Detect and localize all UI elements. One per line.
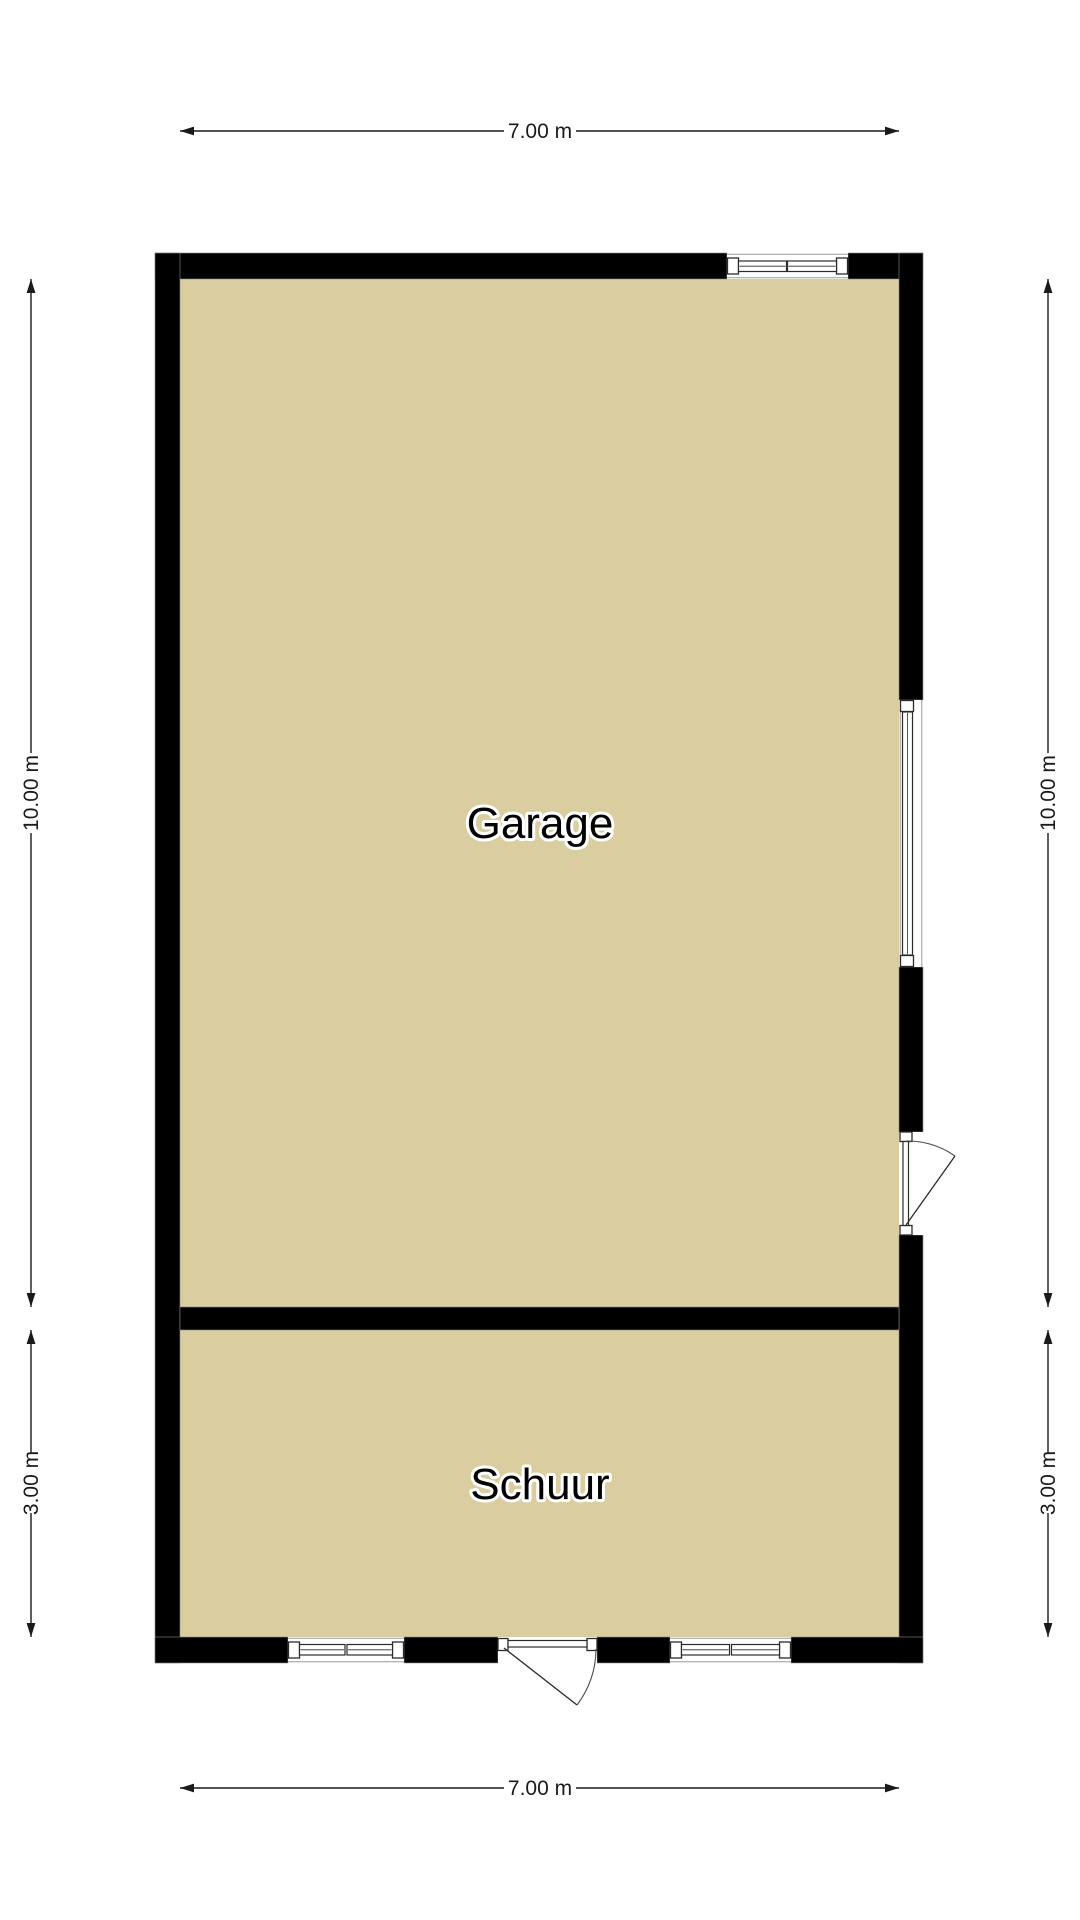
- dim-top-arrow-right: [885, 127, 899, 136]
- dim-left-schuur-label: 3.00 m: [20, 1451, 43, 1515]
- wall-divider: [180, 1307, 899, 1330]
- window-right: [899, 700, 923, 967]
- dim-right-garage: 10.00 m: [1037, 279, 1060, 1307]
- dim-left-garage-arrow-top: [27, 279, 36, 293]
- dim-left-garage: 10.00 m: [20, 279, 43, 1307]
- dim-left-garage-label: 10.00 m: [20, 755, 43, 831]
- dim-top-width: 7.00 m: [180, 120, 899, 143]
- wall-bottom-corner-left: [155, 1637, 288, 1663]
- window-bottom-right-cap-right: [780, 1642, 791, 1658]
- wall-right-lower: [899, 1235, 923, 1663]
- dim-right-schuur-label: 3.00 m: [1037, 1451, 1060, 1515]
- door-right-cap-top: [900, 1132, 912, 1142]
- dim-right-schuur-arrow-top: [1044, 1330, 1053, 1344]
- dim-left-garage-arrow-bottom: [27, 1293, 36, 1307]
- window-right-cap-top: [901, 701, 914, 712]
- door-right: [899, 1132, 955, 1235]
- dim-right-schuur-arrow-bottom: [1044, 1623, 1053, 1637]
- wall-right-middle: [899, 967, 923, 1132]
- door-bottom-cap-left: [498, 1639, 508, 1651]
- door-bottom-closed-panel: [508, 1641, 587, 1648]
- door-right-closed-panel: [903, 1142, 909, 1226]
- schuur-label: Schuur: [470, 1460, 609, 1509]
- wall-bottom-segment-2: [597, 1637, 670, 1663]
- dim-right-schuur: 3.00 m: [1037, 1330, 1060, 1637]
- dim-left-schuur-arrow-top: [27, 1330, 36, 1344]
- dim-right-garage-arrow-top: [1044, 279, 1053, 293]
- dim-bottom-arrow-left: [180, 1784, 194, 1793]
- floorplan-canvas: 7.00 m 7.00 m 10.00 m 3.00 m 10.00 m: [0, 0, 1080, 1920]
- dim-left-schuur-arrow-bottom: [27, 1623, 36, 1637]
- window-bottom-right: [670, 1637, 791, 1663]
- window-bottom-right-cap-left: [671, 1642, 682, 1658]
- floorplan-svg: 7.00 m 7.00 m 10.00 m 3.00 m 10.00 m: [0, 0, 1080, 1920]
- floor-area: [180, 279, 899, 1637]
- dim-right-garage-arrow-bottom: [1044, 1293, 1053, 1307]
- garage-label: Garage: [467, 799, 614, 848]
- dim-left-schuur: 3.00 m: [20, 1330, 43, 1637]
- window-bottom-left: [288, 1637, 404, 1663]
- window-bottom-left-cap-right: [393, 1642, 404, 1658]
- wall-bottom-segment-1: [404, 1637, 498, 1663]
- window-top-cap-left: [728, 258, 739, 274]
- wall-right-upper: [899, 253, 923, 700]
- dim-top-label: 7.00 m: [508, 120, 572, 143]
- door-bottom: [498, 1637, 597, 1705]
- wall-bottom-corner-right: [791, 1637, 923, 1663]
- window-bottom-left-cap-left: [289, 1642, 300, 1658]
- window-top: [727, 253, 848, 279]
- window-right-cap-bottom: [901, 956, 914, 967]
- door-bottom-cap-right: [587, 1639, 597, 1651]
- dim-top-arrow-left: [180, 127, 194, 136]
- dim-bottom-arrow-right: [885, 1784, 899, 1793]
- dim-bottom-width: 7.00 m: [180, 1777, 899, 1800]
- dim-bottom-label: 7.00 m: [508, 1777, 572, 1800]
- wall-left: [155, 253, 180, 1663]
- door-right-cap-bottom: [900, 1226, 912, 1236]
- wall-top-left-segment: [155, 253, 727, 279]
- window-top-cap-right: [837, 258, 848, 274]
- dim-right-garage-label: 10.00 m: [1037, 755, 1060, 831]
